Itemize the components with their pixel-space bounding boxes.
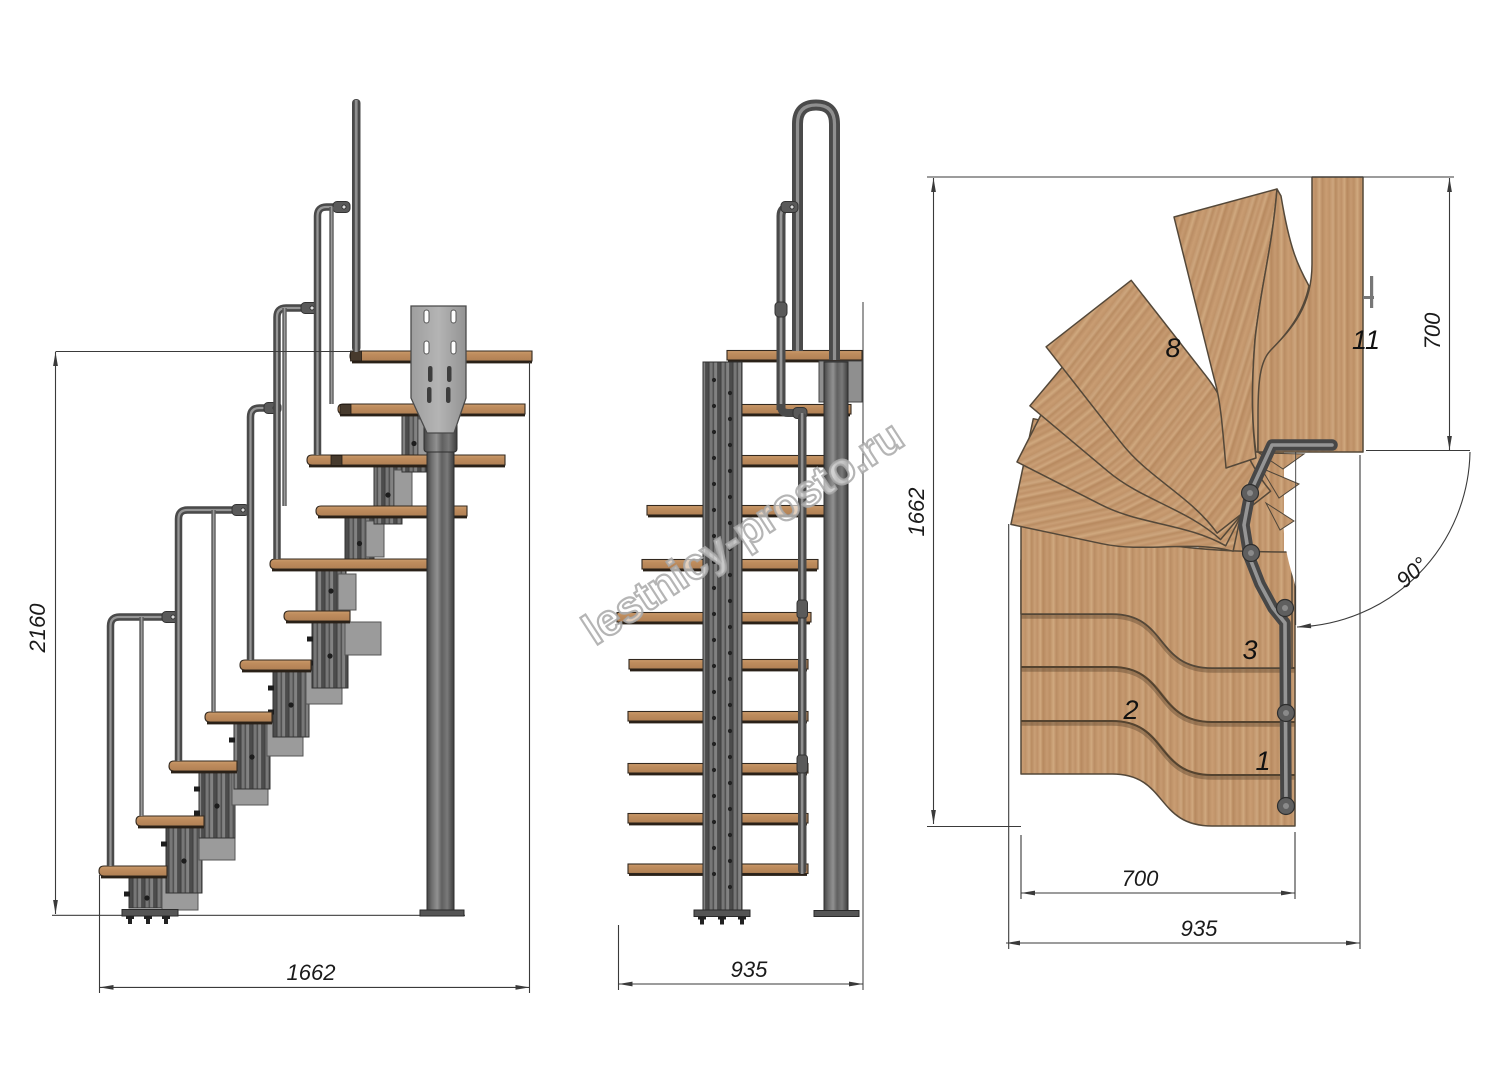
svg-text:3: 3 <box>1242 635 1257 665</box>
svg-text:935: 935 <box>731 957 768 982</box>
svg-text:8: 8 <box>1165 333 1180 363</box>
svg-text:2: 2 <box>1122 695 1138 725</box>
svg-text:1662: 1662 <box>904 488 929 537</box>
svg-text:700: 700 <box>1420 312 1445 349</box>
svg-text:1: 1 <box>1255 746 1270 776</box>
svg-text:700: 700 <box>1122 866 1159 891</box>
svg-text:1662: 1662 <box>287 960 336 985</box>
svg-text:2160: 2160 <box>25 603 50 654</box>
svg-text:935: 935 <box>1181 916 1218 941</box>
svg-text:11: 11 <box>1352 325 1380 355</box>
